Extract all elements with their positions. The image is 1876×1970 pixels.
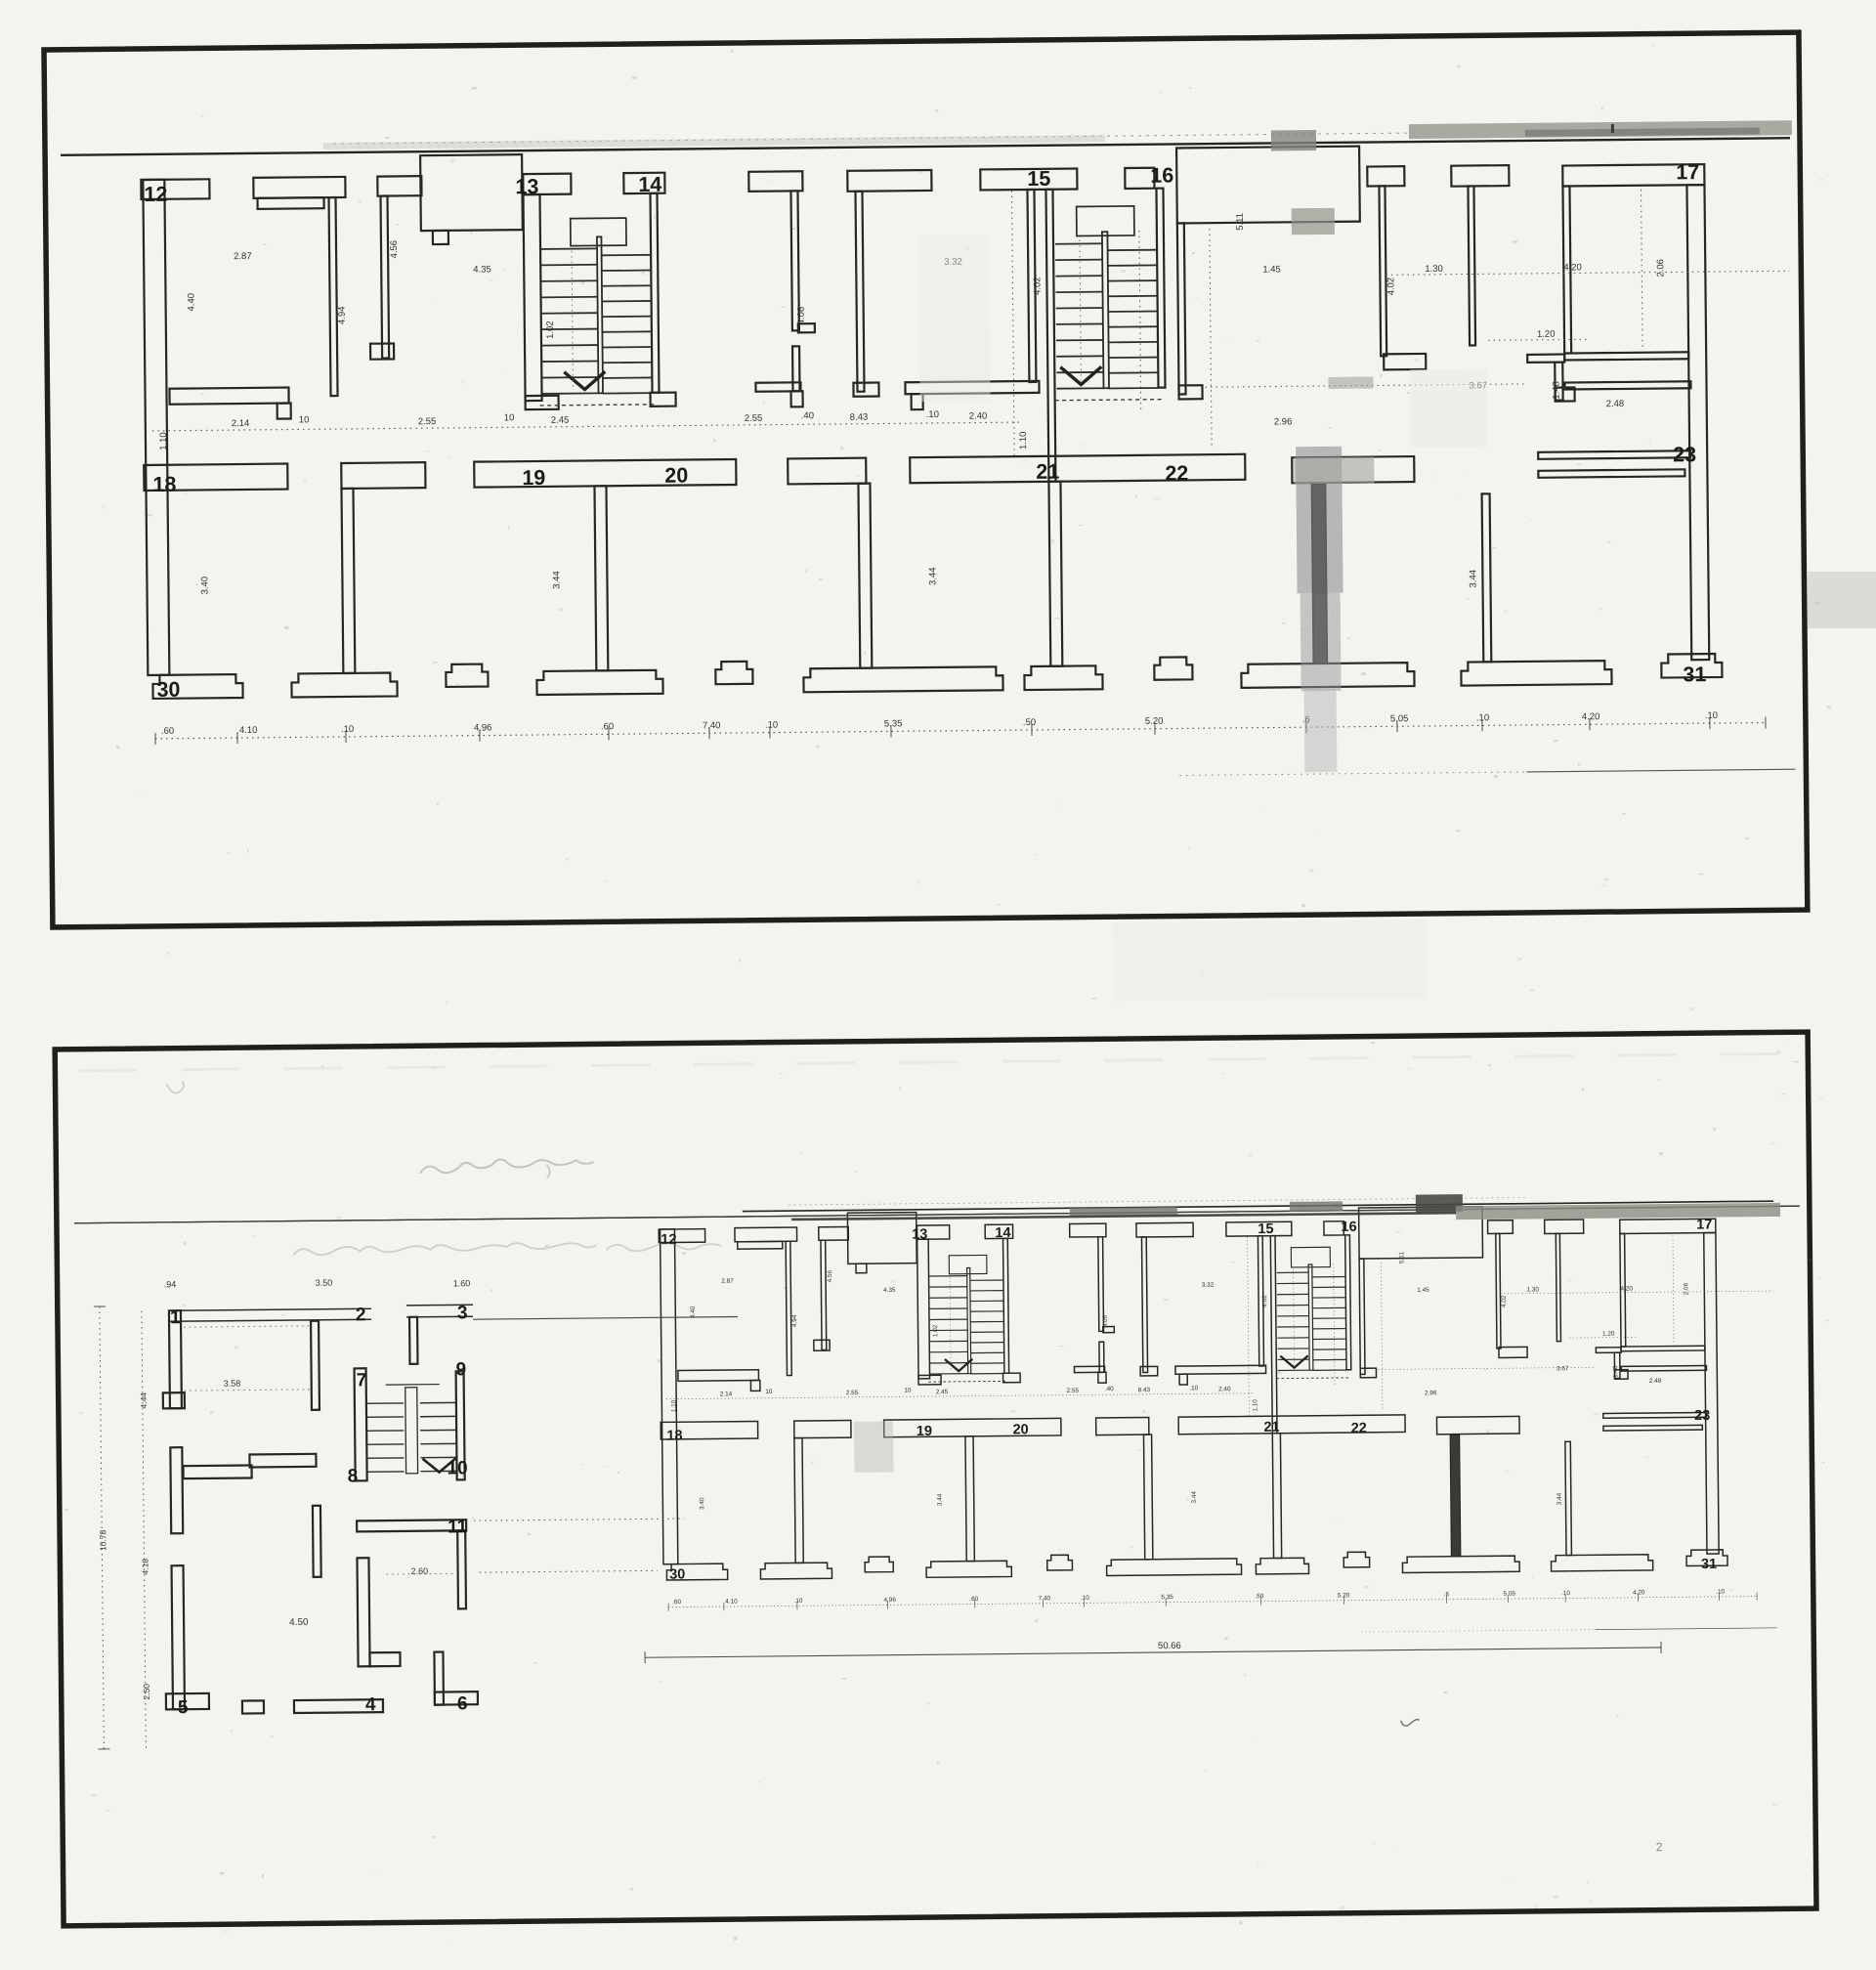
svg-text:6: 6 xyxy=(457,1693,468,1714)
svg-text:10.78: 10.78 xyxy=(98,1529,107,1551)
svg-text:4: 4 xyxy=(365,1694,376,1715)
svg-text:4.18: 4.18 xyxy=(140,1559,149,1575)
svg-text:4.44: 4.44 xyxy=(139,1392,149,1409)
svg-text:3.50: 3.50 xyxy=(316,1278,333,1288)
svg-text:3: 3 xyxy=(457,1303,468,1323)
svg-text:1: 1 xyxy=(170,1307,181,1328)
svg-text:7: 7 xyxy=(357,1370,367,1391)
svg-text:5: 5 xyxy=(178,1697,189,1718)
svg-text:2.60: 2.60 xyxy=(411,1566,429,1576)
svg-text:8: 8 xyxy=(348,1466,359,1486)
svg-text:3.58: 3.58 xyxy=(224,1379,241,1389)
svg-text:11: 11 xyxy=(448,1517,468,1537)
svg-text:1.60: 1.60 xyxy=(453,1278,471,1288)
svg-text:.94: .94 xyxy=(164,1279,177,1289)
svg-text:10: 10 xyxy=(447,1458,467,1478)
svg-text:4.50: 4.50 xyxy=(289,1617,309,1628)
svg-text:50.66: 50.66 xyxy=(1158,1641,1181,1651)
svg-text:2: 2 xyxy=(356,1305,366,1325)
svg-text:2: 2 xyxy=(1656,1840,1663,1854)
svg-text:2.50: 2.50 xyxy=(142,1684,151,1700)
